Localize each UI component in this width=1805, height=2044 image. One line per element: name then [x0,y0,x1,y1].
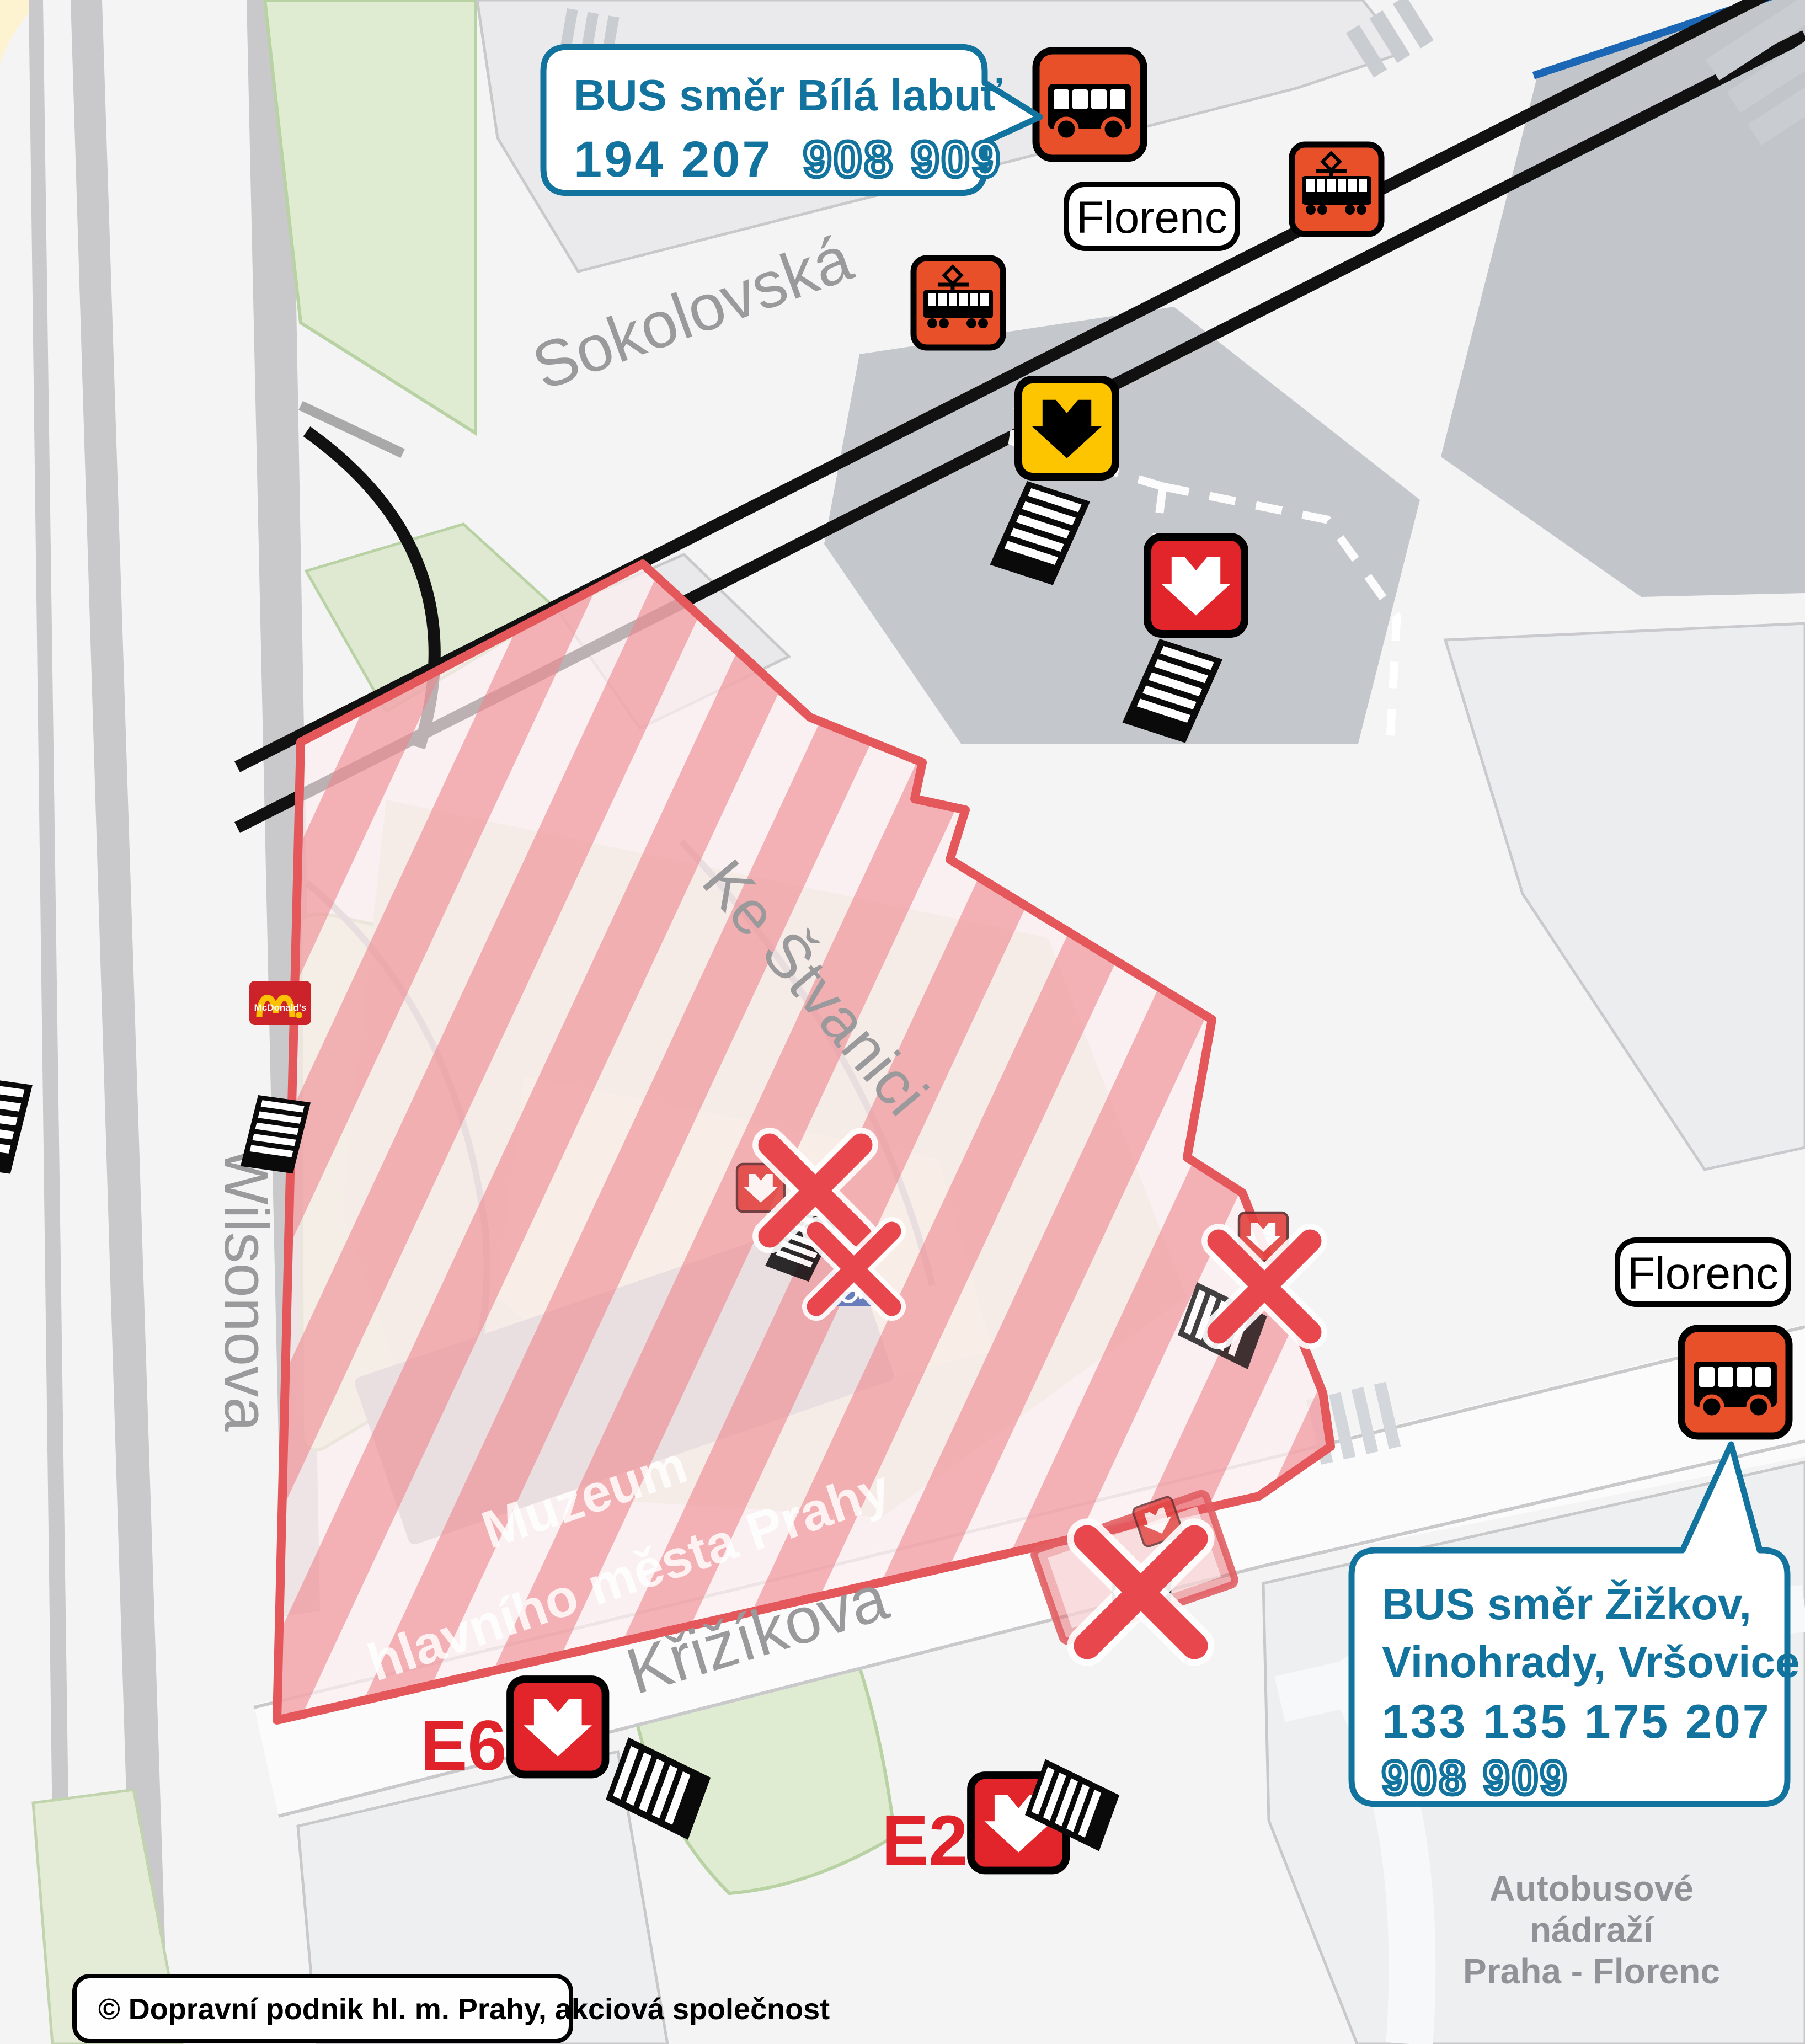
metro-entrance-line-c-icon [1147,537,1245,634]
metro-entrance-e6-icon [510,1679,605,1774]
callout-title-line1: BUS směr Žižkov, [1382,1579,1751,1629]
station-label-text: Florenc [1627,1248,1778,1299]
copyright-text: © Dopravní podnik hl. m. Prahy, akciová … [98,1993,830,2026]
mcdonalds-label: McDonald's [254,1002,307,1013]
mcdonalds-icon: McDonald's [249,981,311,1025]
tram-stop-icon [914,258,1003,348]
metro-entrance-line-b-icon [1018,380,1115,477]
transit-diversion-map: Sokolovská Wilsonova Ke Štvanici Křižíko… [0,0,1805,2044]
entrance-label-e2: E2 [882,1801,968,1880]
bus-terminal-label-line2: nádraží [1530,1910,1654,1950]
tram-stop-icon [1292,145,1381,234]
bus-stop-icon-bila-labut [1036,51,1144,158]
station-label-text: Florenc [1076,193,1227,243]
callout-day-lines: 133 135 175 207 [1382,1695,1771,1748]
callout-day-lines: 194 207 [574,131,773,188]
bus-terminal-label-line1: Autobusové [1489,1869,1694,1908]
bus-stop-icon-zizkov [1681,1328,1789,1436]
street-label-wilsonova: Wilsonova [212,1146,281,1432]
station-label-florenc-top: Florenc [1066,184,1237,248]
callout-title: BUS směr Bílá labuť [574,71,1002,120]
callout-bila-labut: BUS směr Bílá labuť 194 207 908 909 [543,47,1040,193]
callout-night-lines: 908 909 [803,131,1002,188]
callout-night-lines: 908 909 [1382,1752,1569,1805]
map-canvas: Sokolovská Wilsonova Ke Štvanici Křižíko… [0,0,1805,2044]
entrance-label-e6: E6 [420,1706,507,1785]
station-label-florenc-right: Florenc [1617,1240,1788,1304]
callout-title-line2: Vinohrady, Vršovice [1382,1637,1799,1687]
bus-terminal-label-line3: Praha - Florenc [1463,1951,1720,1991]
